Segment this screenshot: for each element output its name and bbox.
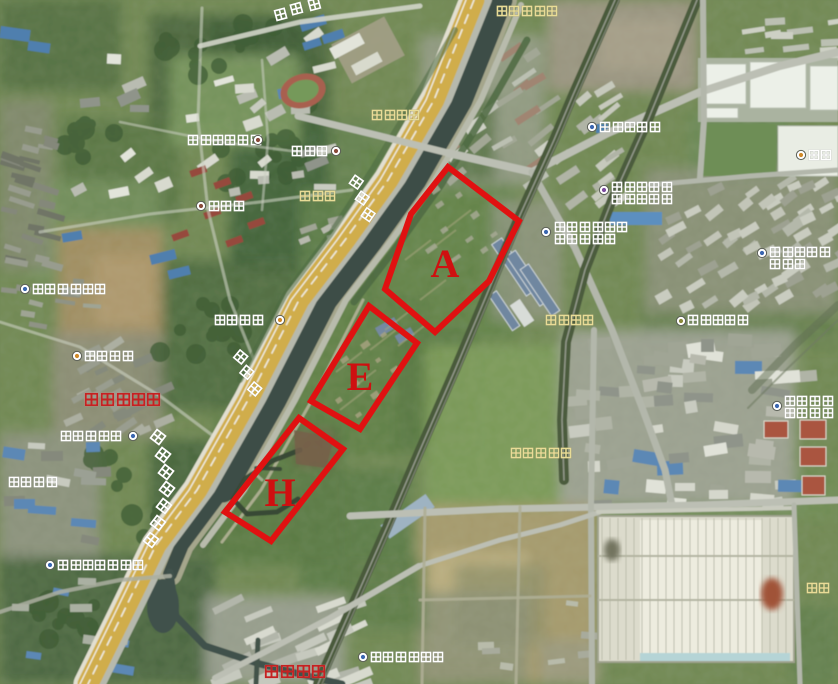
svg-text:A: A [431, 241, 460, 286]
svg-text:E: E [347, 354, 374, 399]
svg-text:H: H [264, 470, 295, 515]
